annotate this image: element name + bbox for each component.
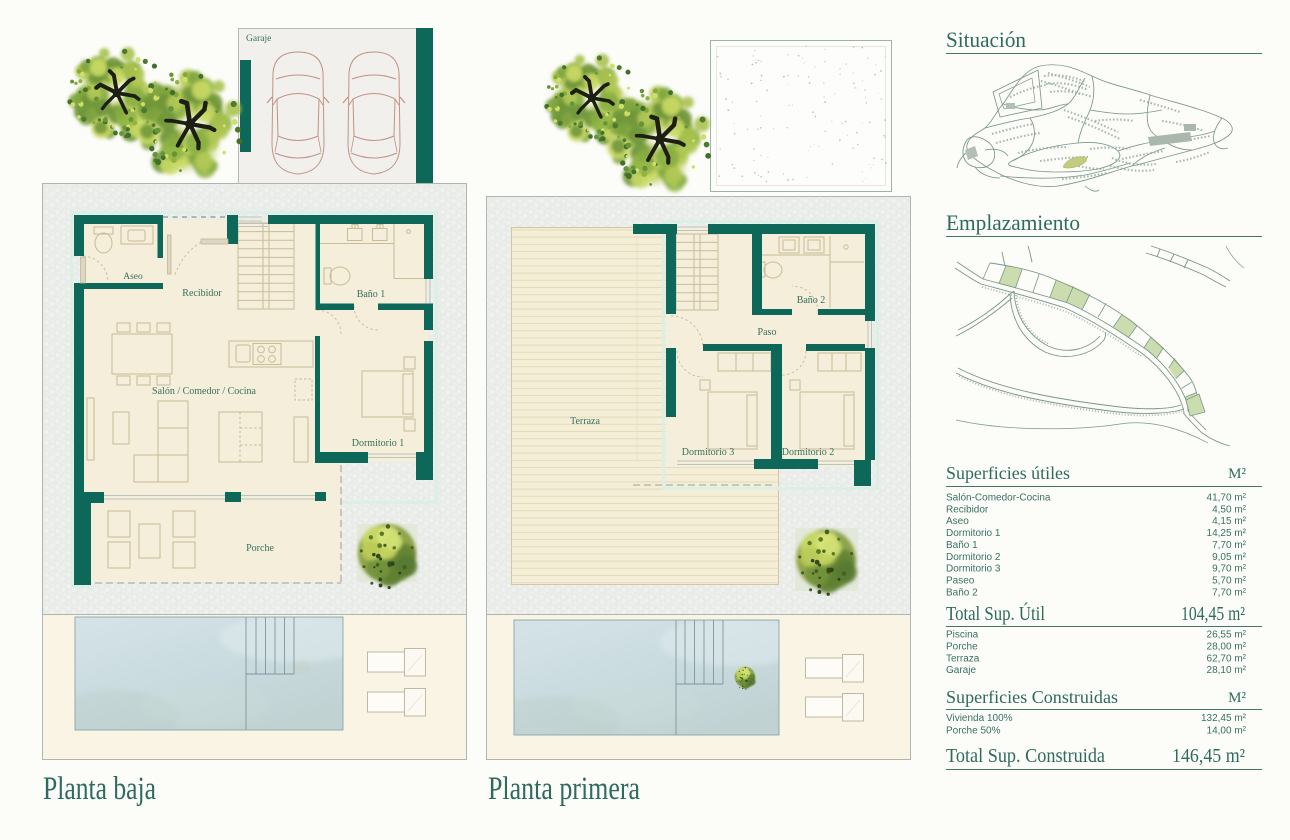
svg-text:Baño 1: Baño 1 [357,289,386,300]
svg-text:Paso: Paso [758,327,777,338]
svg-text:Garaje: Garaje [246,34,271,44]
svg-text:41,70 m²: 41,70 m² [1207,493,1247,504]
svg-text:M²: M² [1228,466,1246,482]
svg-text:Recibidor: Recibidor [946,504,989,515]
svg-text:28,00 m²: 28,00 m² [1207,641,1247,652]
svg-text:14,00 m²: 14,00 m² [1207,725,1247,736]
svg-text:Salón / Comedor / Cocina: Salón / Comedor / Cocina [152,386,256,397]
svg-text:Planta baja: Planta baja [43,771,156,807]
svg-text:Dormitorio 1: Dormitorio 1 [946,528,1001,539]
svg-text:Emplazamiento: Emplazamiento [946,210,1080,235]
svg-text:Baño 1: Baño 1 [946,540,978,551]
svg-text:28,10 m²: 28,10 m² [1207,665,1247,676]
svg-text:9,05 m²: 9,05 m² [1212,552,1247,563]
svg-text:Total Sup. Útil: Total Sup. Útil [946,603,1045,625]
svg-text:Superficies útiles: Superficies útiles [946,463,1070,483]
svg-text:Paseo: Paseo [946,576,975,587]
svg-text:Vivienda 100%: Vivienda 100% [946,713,1013,724]
svg-text:Porche 50%: Porche 50% [946,725,1001,736]
svg-text:14,25 m²: 14,25 m² [1207,528,1247,539]
svg-text:146,45 m²: 146,45 m² [1172,746,1245,767]
svg-text:Aseo: Aseo [946,516,969,527]
svg-text:Superficies Construidas: Superficies Construidas [946,687,1118,707]
svg-text:9,70 m²: 9,70 m² [1212,564,1247,575]
svg-text:5,70 m²: 5,70 m² [1212,576,1247,587]
svg-text:7,70 m²: 7,70 m² [1212,540,1247,551]
svg-text:Terraza: Terraza [946,653,980,664]
svg-text:Terraza: Terraza [570,416,600,427]
svg-text:132,45 m²: 132,45 m² [1201,713,1247,724]
svg-text:Dormitorio 2: Dormitorio 2 [782,447,835,458]
svg-text:Porche: Porche [246,543,274,554]
svg-text:104,45 m²: 104,45 m² [1181,604,1245,625]
svg-text:Situación: Situación [946,27,1026,52]
svg-text:Salón-Comedor-Cocina: Salón-Comedor-Cocina [946,493,1051,504]
svg-text:Aseo: Aseo [123,272,143,282]
svg-text:4,50 m²: 4,50 m² [1212,504,1247,515]
svg-text:Planta primera: Planta primera [488,771,640,807]
svg-text:7,70 m²: 7,70 m² [1212,587,1247,598]
svg-text:62,70 m²: 62,70 m² [1207,653,1247,664]
svg-text:Baño 2: Baño 2 [946,587,978,598]
svg-text:26,55 m²: 26,55 m² [1207,630,1247,641]
svg-text:Total Sup. Construida: Total Sup. Construida [946,746,1105,767]
svg-text:Recibidor: Recibidor [182,288,222,299]
svg-text:Porche: Porche [946,641,978,652]
svg-text:M²: M² [1228,690,1246,706]
svg-text:Baño 2: Baño 2 [797,295,826,306]
svg-text:4,15 m²: 4,15 m² [1212,516,1247,527]
svg-text:Dormitorio 2: Dormitorio 2 [946,552,1001,563]
svg-text:Dormitorio 3: Dormitorio 3 [682,447,735,458]
svg-text:Dormitorio 1: Dormitorio 1 [352,438,405,449]
svg-text:Garaje: Garaje [946,665,976,676]
svg-text:Dormitorio 3: Dormitorio 3 [946,564,1001,575]
svg-text:Piscina: Piscina [946,630,979,641]
